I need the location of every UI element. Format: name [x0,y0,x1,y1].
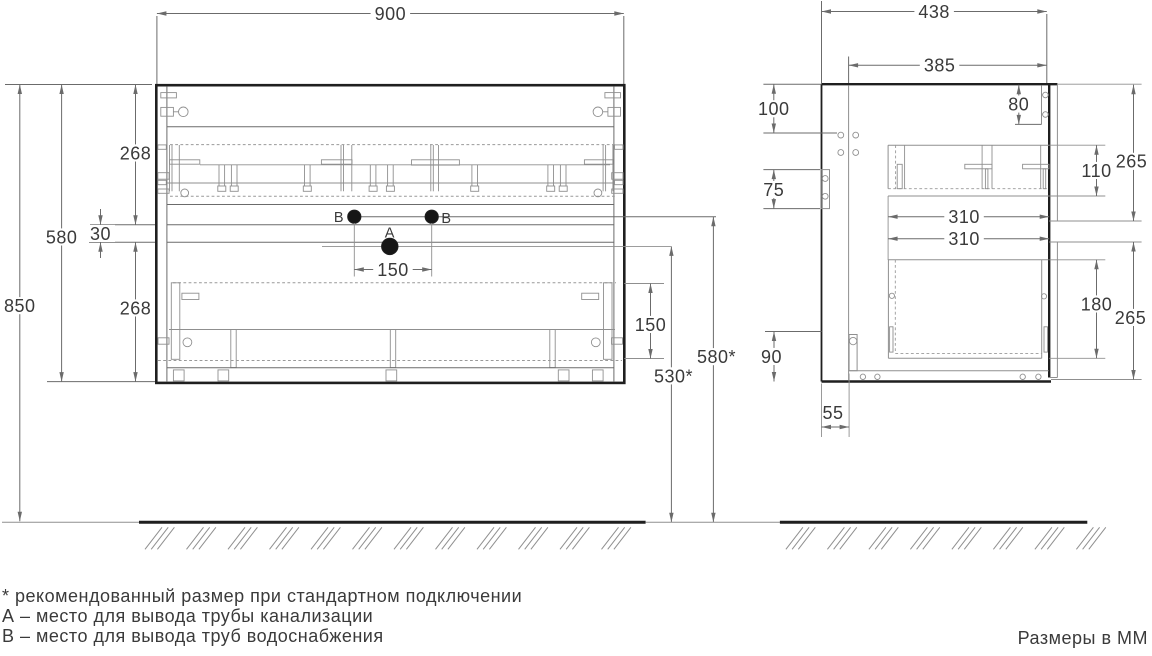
svg-text:* рекомендованный размер при с: * рекомендованный размер при стандартном… [2,586,522,606]
svg-text:385: 385 [924,56,956,76]
svg-text:150: 150 [635,315,667,335]
svg-text:30: 30 [90,224,111,244]
svg-text:310: 310 [948,207,980,227]
svg-text:75: 75 [763,180,784,200]
svg-text:55: 55 [822,403,843,423]
svg-text:900: 900 [375,4,407,24]
svg-text:268: 268 [120,143,152,163]
svg-text:А – место для вывода трубы кан: А – место для вывода трубы канализации [2,606,373,626]
svg-text:100: 100 [758,99,790,119]
svg-text:438: 438 [918,2,950,22]
svg-text:В – место для вывода труб водо: В – место для вывода труб водоснабжения [2,626,384,646]
svg-text:310: 310 [948,229,980,249]
svg-text:265: 265 [1116,152,1148,172]
svg-text:580*: 580* [697,347,736,367]
svg-text:268: 268 [120,298,152,318]
svg-text:110: 110 [1081,161,1111,181]
svg-text:B: B [334,210,344,226]
svg-text:90: 90 [761,347,782,367]
svg-text:530*: 530* [654,366,693,386]
svg-text:265: 265 [1115,308,1147,328]
svg-text:150: 150 [377,260,409,280]
svg-text:A: A [385,226,395,242]
svg-text:580: 580 [46,227,78,247]
svg-text:80: 80 [1008,94,1029,114]
svg-text:Размеры в ММ: Размеры в ММ [1018,628,1148,648]
svg-text:850: 850 [4,296,36,316]
svg-text:180: 180 [1081,294,1113,314]
